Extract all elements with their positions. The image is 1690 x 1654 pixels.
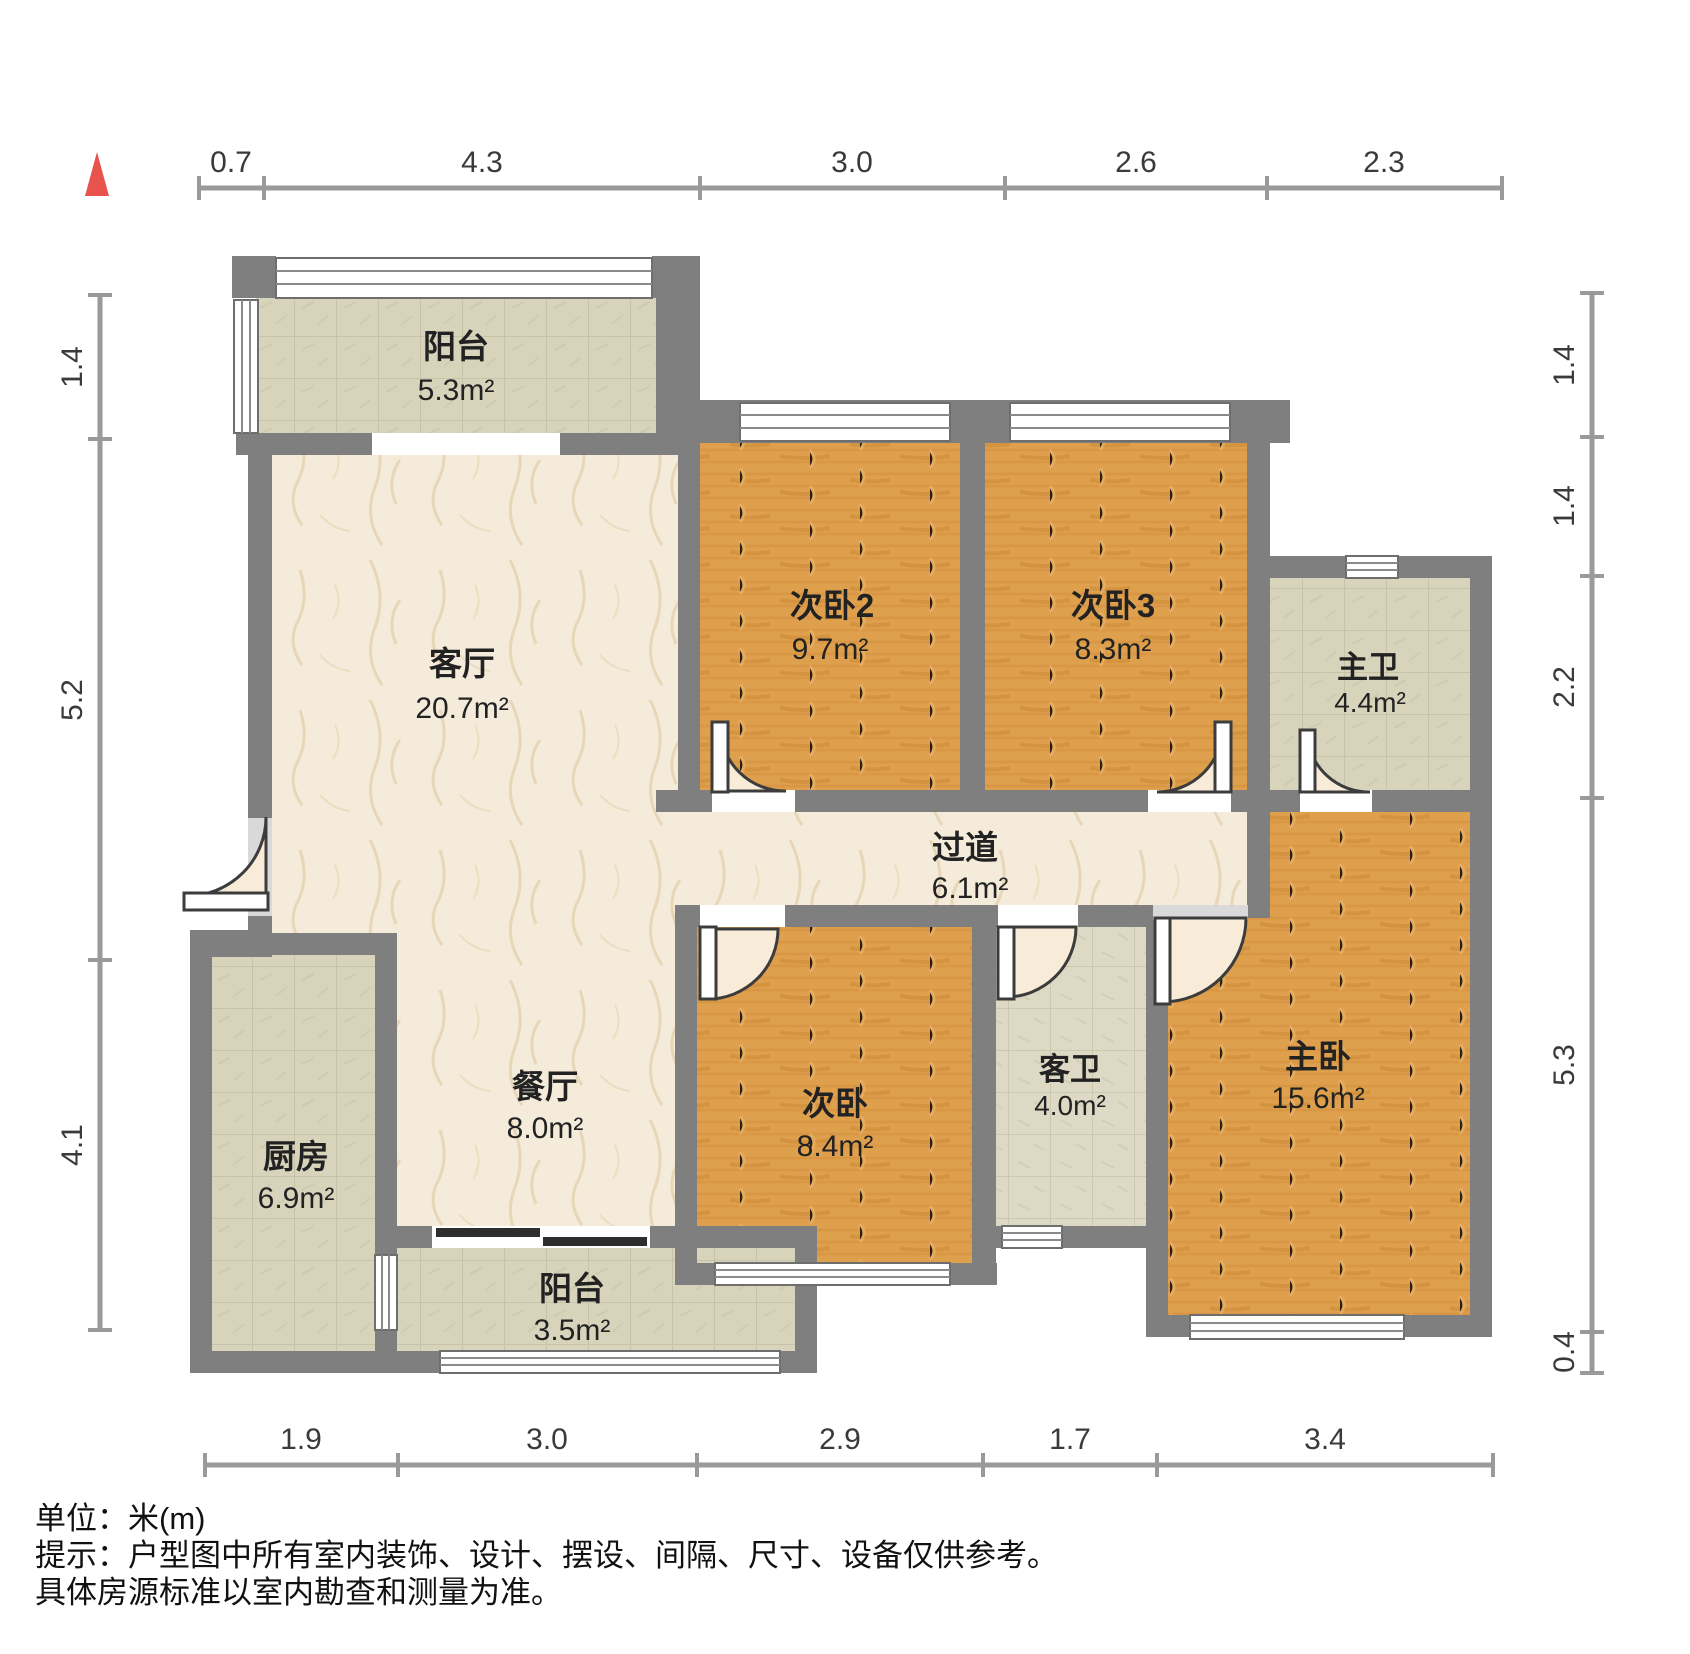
master-bed-window-icon — [1190, 1315, 1404, 1339]
master-bath-window-icon — [1346, 556, 1398, 578]
guest-bath-area: 4.0m² — [1034, 1090, 1106, 1121]
kitchen-label: 厨房 — [263, 1138, 329, 1175]
dim-top-1: 4.3 — [461, 146, 503, 179]
bedroom3-area: 8.3m² — [1075, 633, 1152, 666]
sliding-door-icon — [432, 1226, 650, 1248]
dim-bottom-2: 2.9 — [819, 1423, 861, 1456]
guest-bath-label: 客卫 — [1039, 1052, 1101, 1087]
dim-right-2: 2.2 — [1548, 666, 1581, 708]
balcony-bottom-label: 阳台 — [539, 1270, 605, 1307]
dim-right-4: 0.4 — [1548, 1331, 1581, 1373]
bedroom2-label: 次卧2 — [790, 587, 874, 624]
living-room-label: 客厅 — [429, 645, 495, 682]
footer-unit-line: 单位：米(m) — [35, 1500, 1058, 1537]
dim-left-0: 1.4 — [56, 346, 89, 388]
hallway-label: 过道 — [932, 829, 998, 866]
dimension-top: 0.7 4.3 3.0 2.6 2.3 — [199, 146, 1502, 200]
kitchen-area: 6.9m² — [258, 1182, 335, 1215]
dim-left-1: 5.2 — [56, 679, 89, 721]
bedroom2-area: 9.7m² — [792, 633, 869, 666]
balcony-bottom-window-icon — [440, 1351, 780, 1373]
footer-disclaimer-line2: 具体房源标准以室内勘查和测量为准。 — [35, 1574, 1058, 1611]
north-triangle-icon — [85, 152, 109, 196]
dim-left-2: 4.1 — [56, 1124, 89, 1166]
dim-bottom-4: 3.4 — [1304, 1423, 1346, 1456]
guest-bath-window-icon — [1002, 1226, 1062, 1248]
master-bath-area: 4.4m² — [1334, 687, 1406, 718]
hallway-area: 6.1m² — [932, 872, 1009, 905]
dimension-right: 1.4 1.4 2.2 5.3 0.4 — [1548, 293, 1604, 1373]
dim-top-0: 0.7 — [210, 146, 252, 179]
entry-door-icon — [184, 817, 272, 916]
dimension-left: 1.4 5.2 4.1 — [56, 295, 112, 1330]
floorplan-page: 阳台 5.3m² 客厅 20.7m² 次卧2 9.7m² 次卧3 8.3m² 主… — [0, 0, 1690, 1654]
dim-top-2: 3.0 — [831, 146, 873, 179]
bedroom1-area: 8.4m² — [797, 1130, 874, 1163]
dimension-bottom: 1.9 3.0 2.9 1.7 3.4 — [205, 1423, 1493, 1477]
living-room-area: 20.7m² — [415, 692, 508, 725]
kitchen-side-window-icon — [375, 1255, 397, 1330]
floorplan-canvas: 阳台 5.3m² 客厅 20.7m² 次卧2 9.7m² 次卧3 8.3m² 主… — [0, 0, 1690, 1654]
bedroom2-window-icon — [740, 403, 950, 441]
master-bath-label: 主卫 — [1337, 650, 1399, 685]
bedroom1-label: 次卧 — [802, 1085, 868, 1122]
balcony-top-window-icon — [276, 258, 652, 298]
dim-top-3: 2.6 — [1115, 146, 1157, 179]
bedroom3-label: 次卧3 — [1071, 587, 1155, 624]
balcony-top-label: 阳台 — [423, 328, 489, 365]
dim-right-3: 5.3 — [1548, 1044, 1581, 1086]
balcony-left-window-icon — [234, 300, 258, 433]
dim-bottom-1: 3.0 — [526, 1423, 568, 1456]
footer-notes: 单位：米(m) 提示：户型图中所有室内装饰、设计、摆设、间隔、尺寸、设备仅供参考… — [35, 1500, 1058, 1611]
master-bed-floor-upper — [1270, 812, 1470, 922]
dim-top-4: 2.3 — [1363, 146, 1405, 179]
balcony-bottom-area: 3.5m² — [534, 1314, 611, 1347]
footer-disclaimer-line1: 提示：户型图中所有室内装饰、设计、摆设、间隔、尺寸、设备仅供参考。 — [35, 1537, 1058, 1574]
master-bed-area: 15.6m² — [1271, 1082, 1364, 1115]
dim-right-1: 1.4 — [1548, 485, 1581, 527]
bedroom1-window-icon — [715, 1263, 950, 1285]
dim-bottom-0: 1.9 — [280, 1423, 322, 1456]
master-bed-label: 主卧 — [1285, 1038, 1351, 1075]
dim-bottom-3: 1.7 — [1049, 1423, 1091, 1456]
balcony-top-area: 5.3m² — [418, 374, 495, 407]
dining-room-area: 8.0m² — [507, 1112, 584, 1145]
dining-room-label: 餐厅 — [512, 1068, 578, 1105]
balcony-top-floor — [256, 298, 656, 433]
dim-right-0: 1.4 — [1548, 344, 1581, 386]
floors — [212, 298, 1470, 1351]
bedroom3-window-icon — [1010, 403, 1230, 441]
